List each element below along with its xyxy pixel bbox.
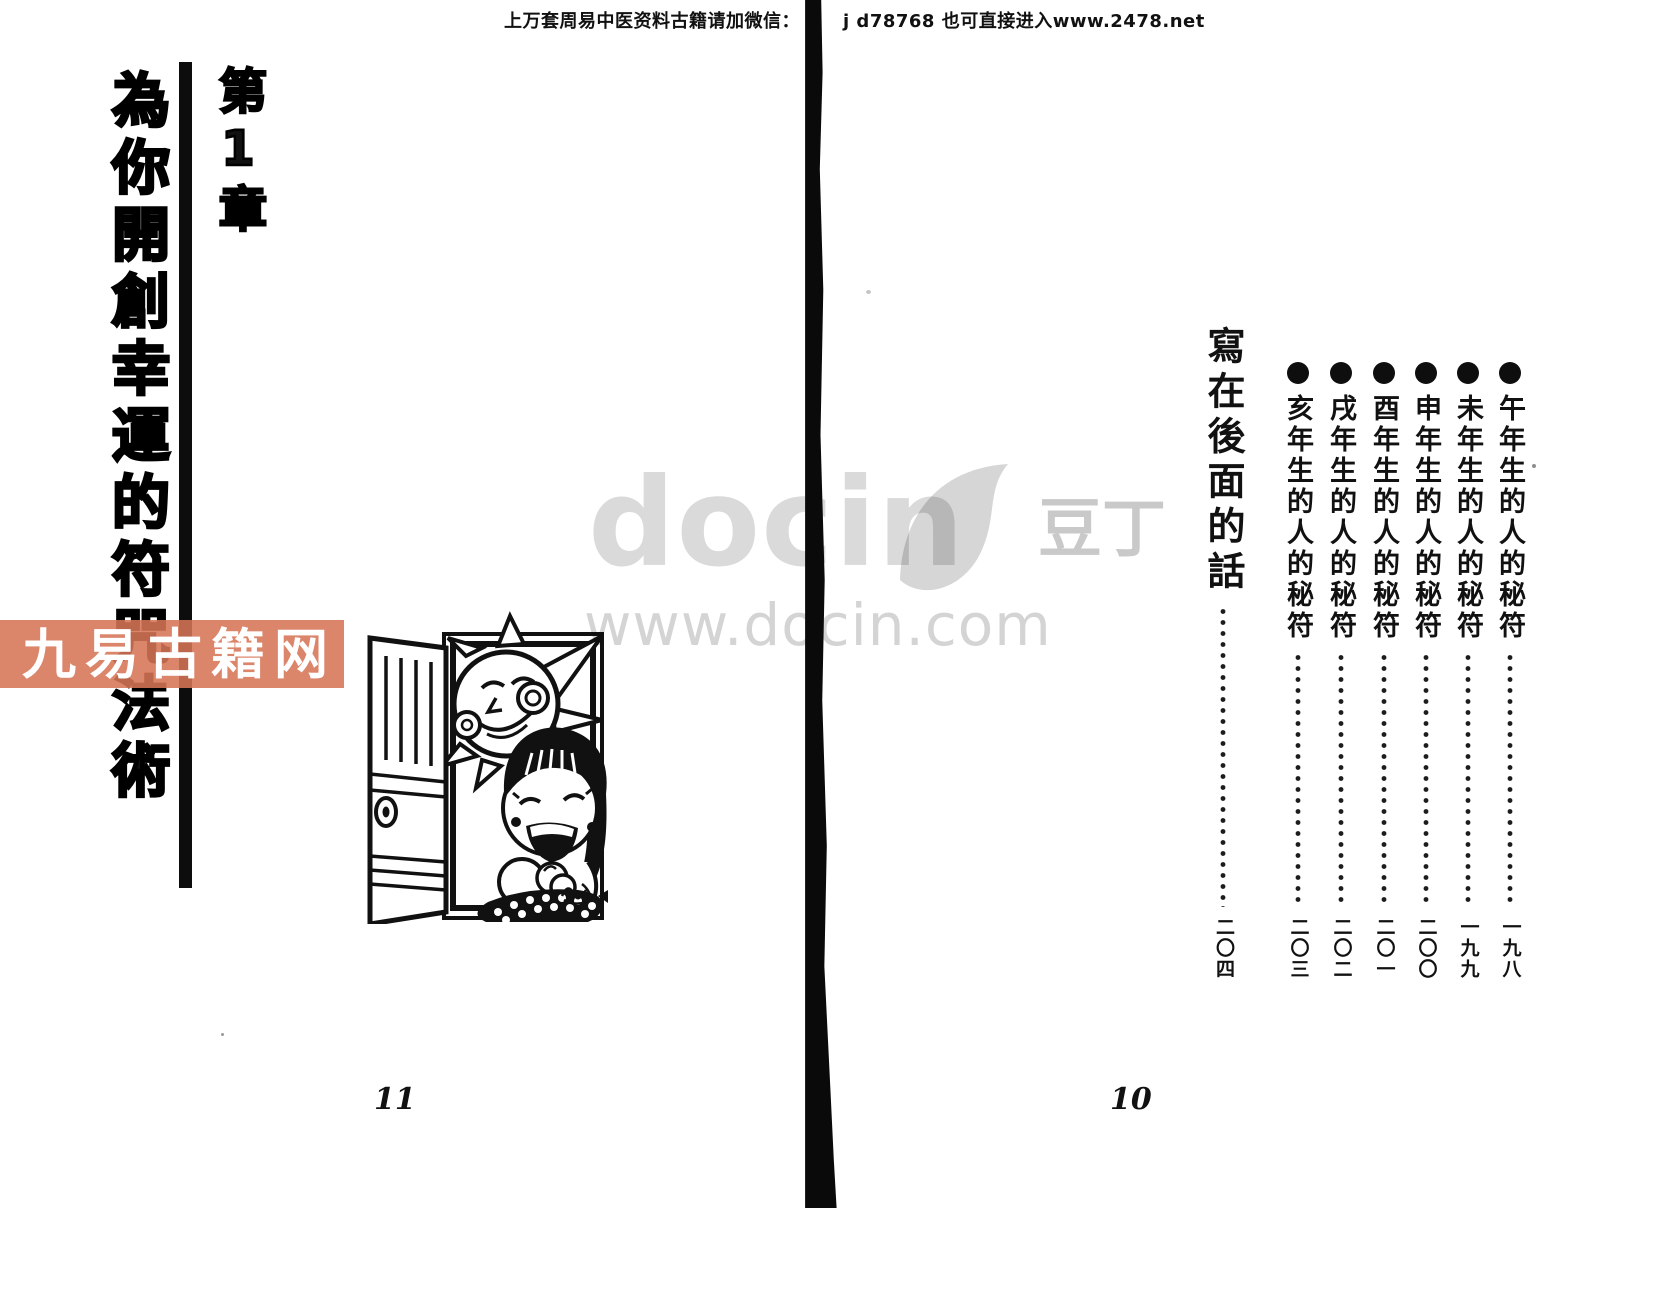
dotted-leader bbox=[1294, 652, 1302, 907]
toc-entry-wu-year: 午年生的人的秘符 一九八 bbox=[1496, 362, 1523, 980]
toc-page-number: 二〇〇 bbox=[1416, 917, 1436, 980]
toc-page-number: 二〇二 bbox=[1331, 917, 1351, 980]
bullet-icon bbox=[1287, 362, 1309, 384]
bullet-icon bbox=[1415, 362, 1437, 384]
dotted-leader bbox=[1422, 652, 1430, 907]
dotted-leader bbox=[1506, 652, 1514, 907]
right-page-number: 10 bbox=[1110, 1082, 1152, 1117]
toc-label: 未年生的人的秘符 bbox=[1454, 394, 1481, 642]
bullet-icon bbox=[1499, 362, 1521, 384]
left-page-number: 11 bbox=[374, 1082, 416, 1117]
toc-label: 亥年生的人的秘符 bbox=[1284, 394, 1311, 642]
toc-label: 酉年生的人的秘符 bbox=[1370, 394, 1397, 642]
bullet-icon bbox=[1457, 362, 1479, 384]
red-watermark-banner: 九易古籍网 bbox=[0, 620, 344, 688]
toc-entry-afterword: 寫在後面的話 二〇四 bbox=[1204, 326, 1242, 980]
docin-cn-text: 豆丁 bbox=[1038, 498, 1166, 562]
dotted-leader bbox=[1380, 652, 1388, 907]
toc-page-number: 二〇三 bbox=[1288, 917, 1308, 980]
scan-speck bbox=[1532, 464, 1536, 468]
header-notice-left: 上万套周易中医资料古籍请加微信： bbox=[504, 7, 800, 33]
toc-entry-shen-year: 申年生的人的秘符 二〇〇 bbox=[1412, 362, 1439, 980]
bullet-icon bbox=[1330, 362, 1352, 384]
toc-page-number: 一九九 bbox=[1458, 917, 1478, 980]
chapter-divider-rule bbox=[179, 62, 192, 888]
docin-leaf-icon bbox=[896, 458, 1026, 608]
toc-label: 寫在後面的話 bbox=[1204, 326, 1242, 596]
dotted-leader bbox=[1464, 652, 1472, 907]
toc-page-number: 一九八 bbox=[1500, 917, 1520, 980]
toc-label: 午年生的人的秘符 bbox=[1496, 394, 1523, 642]
toc-entry-xu-year: 戌年生的人的秘符 二〇二 bbox=[1327, 362, 1354, 980]
toc-entry-hai-year: 亥年生的人的秘符 二〇三 bbox=[1284, 362, 1311, 980]
toc-entry-wei-year: 未年生的人的秘符 一九九 bbox=[1454, 362, 1481, 980]
book-title-vertical: 為你開創幸運的符咒法術 bbox=[94, 70, 178, 807]
bullet-icon bbox=[1373, 362, 1395, 384]
dotted-leader bbox=[1219, 606, 1227, 907]
toc-page-number: 二〇一 bbox=[1374, 917, 1394, 980]
red-watermark-text: 九易古籍网 bbox=[0, 627, 337, 681]
toc-label: 申年生的人的秘符 bbox=[1412, 394, 1439, 642]
chapter-label: 第1章 bbox=[203, 66, 273, 239]
sun-and-girl-illustration bbox=[356, 594, 608, 924]
toc-label: 戌年生的人的秘符 bbox=[1327, 394, 1354, 642]
open-door bbox=[370, 638, 446, 924]
scan-speck bbox=[221, 1033, 224, 1036]
toc-page-number: 二〇四 bbox=[1213, 917, 1233, 980]
dotted-leader bbox=[1337, 652, 1345, 907]
header-notice-right: j d78768 也可直接进入www.2478.net bbox=[843, 7, 1205, 33]
toc-entry-you-year: 酉年生的人的秘符 二〇一 bbox=[1370, 362, 1397, 980]
scan-speck bbox=[866, 290, 871, 294]
